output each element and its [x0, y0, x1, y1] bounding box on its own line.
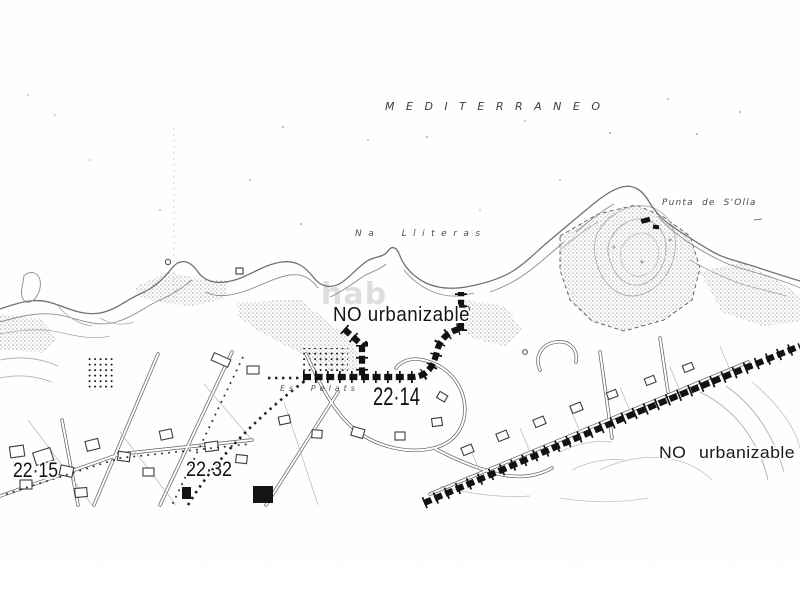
- parcel-label-left: 22·15: [13, 459, 58, 482]
- sea-label: MEDITERRANEO: [385, 100, 611, 113]
- cape-label: Punta de S'Olla: [662, 198, 757, 208]
- zone-label-right: NO urbanizable: [659, 443, 795, 462]
- parcel-label-center: 22·14: [373, 383, 420, 411]
- parcel-label-mid: 22·32: [186, 458, 232, 481]
- map-svg: hab: [0, 0, 800, 600]
- zone-label-center: NO urbanizable: [333, 304, 470, 326]
- place-label: Es Pelats: [280, 384, 359, 393]
- bay-label: Na Lliteras: [355, 229, 487, 239]
- scanned-planning-map: hab: [0, 0, 800, 600]
